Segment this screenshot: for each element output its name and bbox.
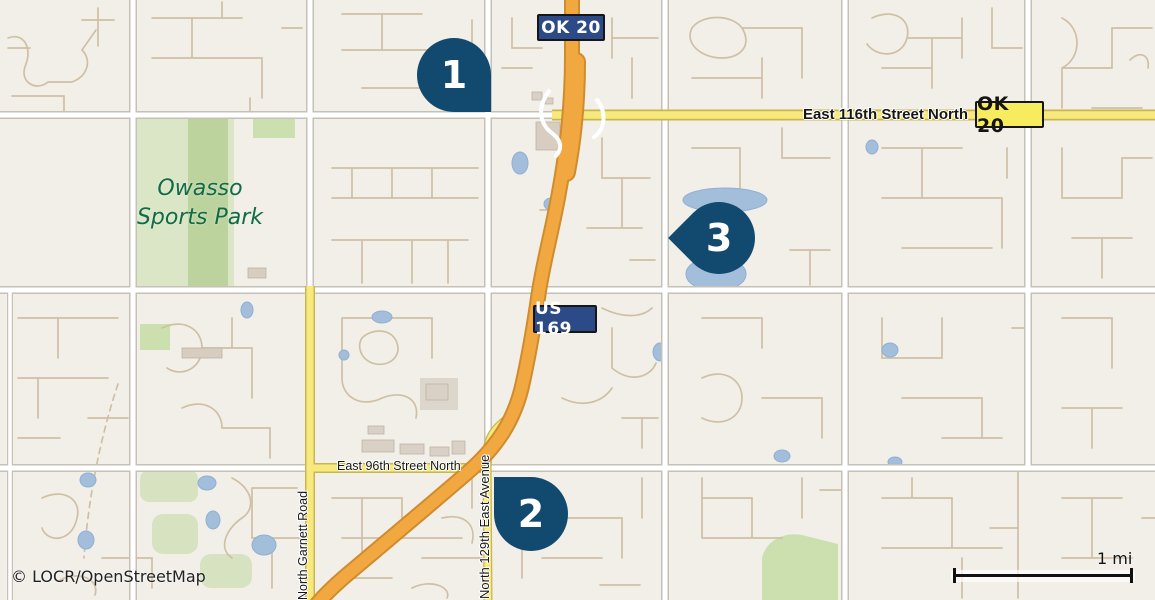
map-pin-2[interactable]: 2 (494, 477, 568, 551)
scale-bar (951, 566, 1135, 586)
scale-bar-line (953, 574, 1133, 577)
scale-bar-right-tick (1130, 568, 1133, 583)
street-label-garnett: North Garnett Road (296, 491, 310, 600)
map-attribution: © LOCR/OpenStreetMap (11, 567, 206, 586)
map-pin-1[interactable]: 1 (417, 38, 491, 112)
route-shield-ok20-right: OK 20 (975, 101, 1044, 128)
street-label-e116: East 116th Street North (803, 106, 968, 123)
route-shield-ok20-top: OK 20 (537, 14, 605, 41)
park-label: Owasso Sports Park (116, 174, 284, 232)
map-pin-2-number: 2 (518, 492, 544, 536)
park-label-line2: Sports Park (116, 203, 284, 232)
map-pin-3-number: 3 (706, 216, 732, 260)
street-label-n129: North 129th East Avenue (477, 455, 492, 599)
street-label-e96: East 96th Street North (337, 459, 461, 473)
park-label-line1: Owasso (116, 174, 284, 203)
map-pin-1-number: 1 (441, 53, 467, 97)
route-shield-us169: US 169 (533, 305, 597, 333)
map-viewport[interactable]: Owasso Sports Park East 116th Street Nor… (0, 0, 1155, 600)
